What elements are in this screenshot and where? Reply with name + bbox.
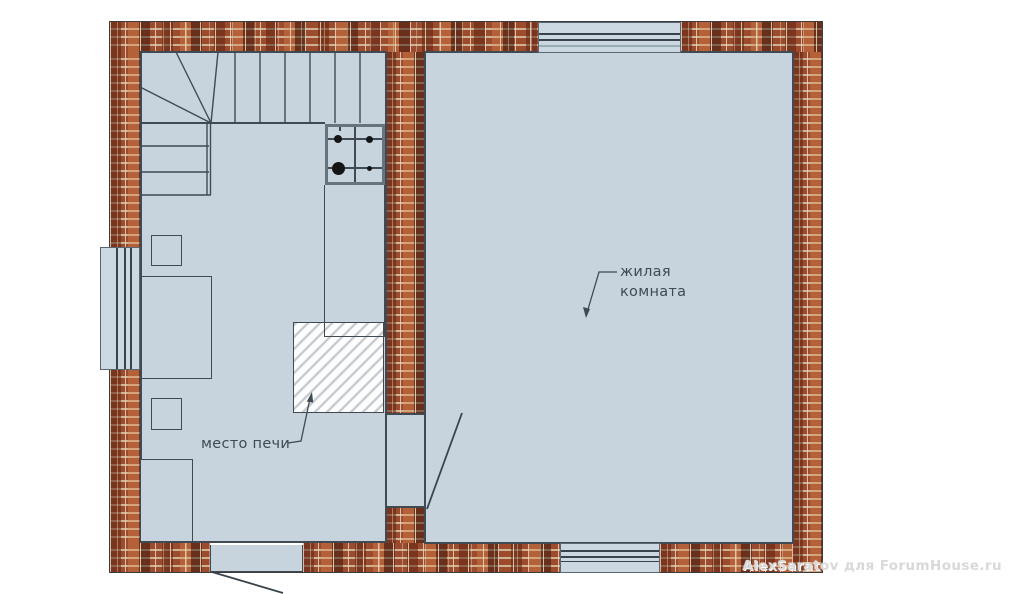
wall-middle-upper-segment [385,52,426,413]
stove-divider-line [354,127,356,182]
stove-burner [367,166,372,171]
watermark: AlexSaratov для ForumHouse.ru [742,558,1002,574]
label-stove-place: место печи [201,434,290,454]
window-left [100,247,140,370]
window-glazing-line [130,248,132,369]
label-living-room: жилая комната [620,262,686,302]
wall-top-right-segment [681,22,822,52]
stove-burner [332,162,345,175]
stove-tick [339,127,341,131]
stove-burner [334,135,342,143]
stool-lower [151,398,182,430]
stool-upper [151,235,182,266]
stove-burner [366,136,373,143]
wall-bottom-segment-2 [303,543,560,572]
wall-right [792,52,822,572]
window-top [538,22,681,53]
window-glazing-line [561,550,659,552]
entrance-door-leaf [212,572,283,593]
window-glazing-line [561,561,659,563]
living-room-floor [424,51,794,544]
window-bottom [560,543,660,573]
wall-middle-lower-segment [385,508,426,543]
window-glazing-line [124,248,126,369]
label-living-room-line2: комната [620,282,686,302]
window-glazing-line [116,248,118,369]
wall-left-lower-segment [110,370,140,572]
window-glazing-line [539,39,680,41]
window-glazing-line [561,556,659,558]
flue-outline [324,185,385,337]
label-living-room-line1: жилая [620,262,686,282]
table [141,276,212,379]
stove-cooktop [325,124,385,185]
window-glazing-line [539,45,680,47]
entrance-doorway [210,545,303,572]
interior-doorway [387,413,424,508]
floor-plan: жилая комната место печи AlexSaratov для… [0,0,1024,594]
wall-top-left-segment [110,22,538,52]
wall-bottom-segment-1 [110,543,210,572]
window-glazing-line [539,33,680,35]
wall-left-upper-segment [110,52,140,247]
cabinet [140,459,193,542]
